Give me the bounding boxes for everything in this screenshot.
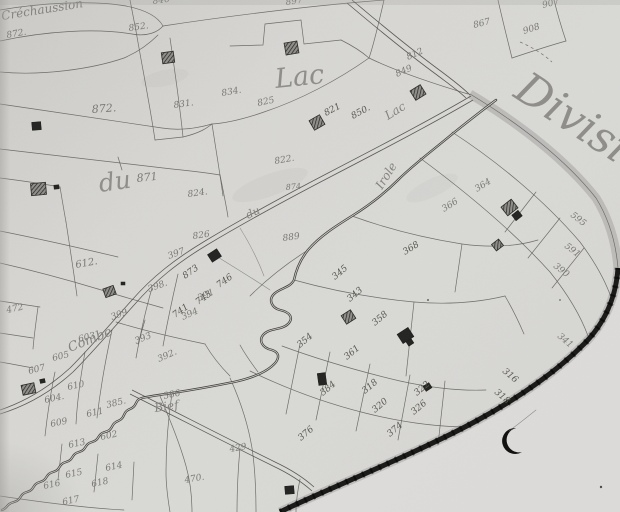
- corner-shadow: [0, 392, 140, 512]
- building-symbol: [285, 486, 295, 495]
- cadastral-map-sheet: DivisionLacduCréchaussionCombeBiefLacduI…: [0, 0, 620, 512]
- cadastral-map-svg: DivisionLacduCréchaussionCombeBiefLacduI…: [0, 0, 620, 512]
- building-symbol: [31, 182, 47, 195]
- lac-large-label: Lac: [272, 59, 325, 95]
- building-symbol: [317, 373, 327, 386]
- building-symbol: [32, 122, 42, 131]
- parcel-number: 871: [136, 170, 158, 185]
- building-symbol: [161, 51, 174, 64]
- parcel-number: 874: [285, 182, 301, 192]
- building-symbol: [54, 185, 59, 189]
- building-symbol: [284, 41, 299, 55]
- top-edge-shadow: [0, 0, 620, 5]
- building-symbol: [40, 379, 46, 384]
- building-symbol: [121, 282, 125, 285]
- du-large-label: du: [97, 165, 133, 198]
- parcel-number: 872.: [91, 101, 116, 116]
